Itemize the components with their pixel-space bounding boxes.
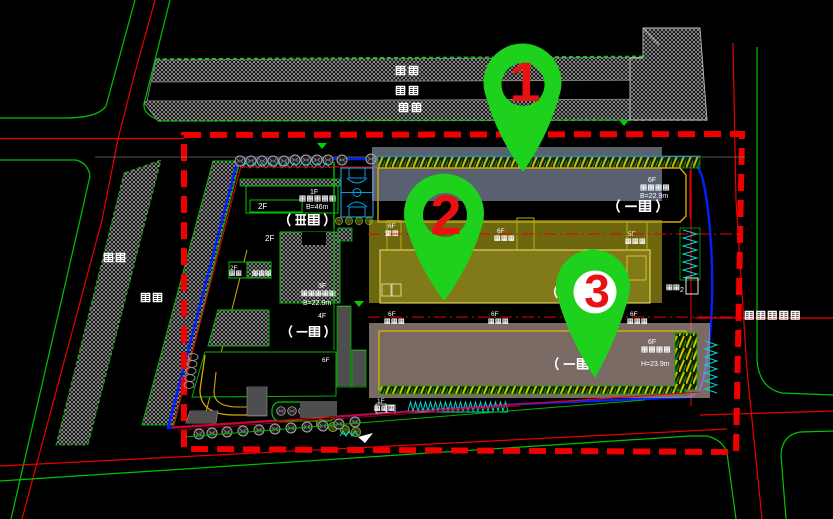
svg-text:B=46m: B=46m [306,204,329,211]
svg-text:H=23.9m: H=23.9m [641,361,670,368]
svg-text:2: 2 [430,183,461,246]
svg-text:B=22.9m: B=22.9m [640,193,668,200]
svg-text:6F: 6F [322,357,330,364]
svg-text:2: 2 [680,287,684,294]
svg-text:2F: 2F [258,202,267,211]
svg-text:2F: 2F [265,234,274,243]
svg-text:6F: 6F [388,223,396,230]
svg-text:4F: 4F [318,313,326,320]
svg-text:1: 1 [509,50,540,113]
svg-text:6F: 6F [648,339,656,346]
svg-text:6F: 6F [648,177,656,184]
svg-text:1F: 1F [310,189,318,196]
svg-text:3F: 3F [318,283,326,290]
svg-text:B=22.9m: B=22.9m [303,300,331,307]
svg-text:3: 3 [584,265,610,317]
